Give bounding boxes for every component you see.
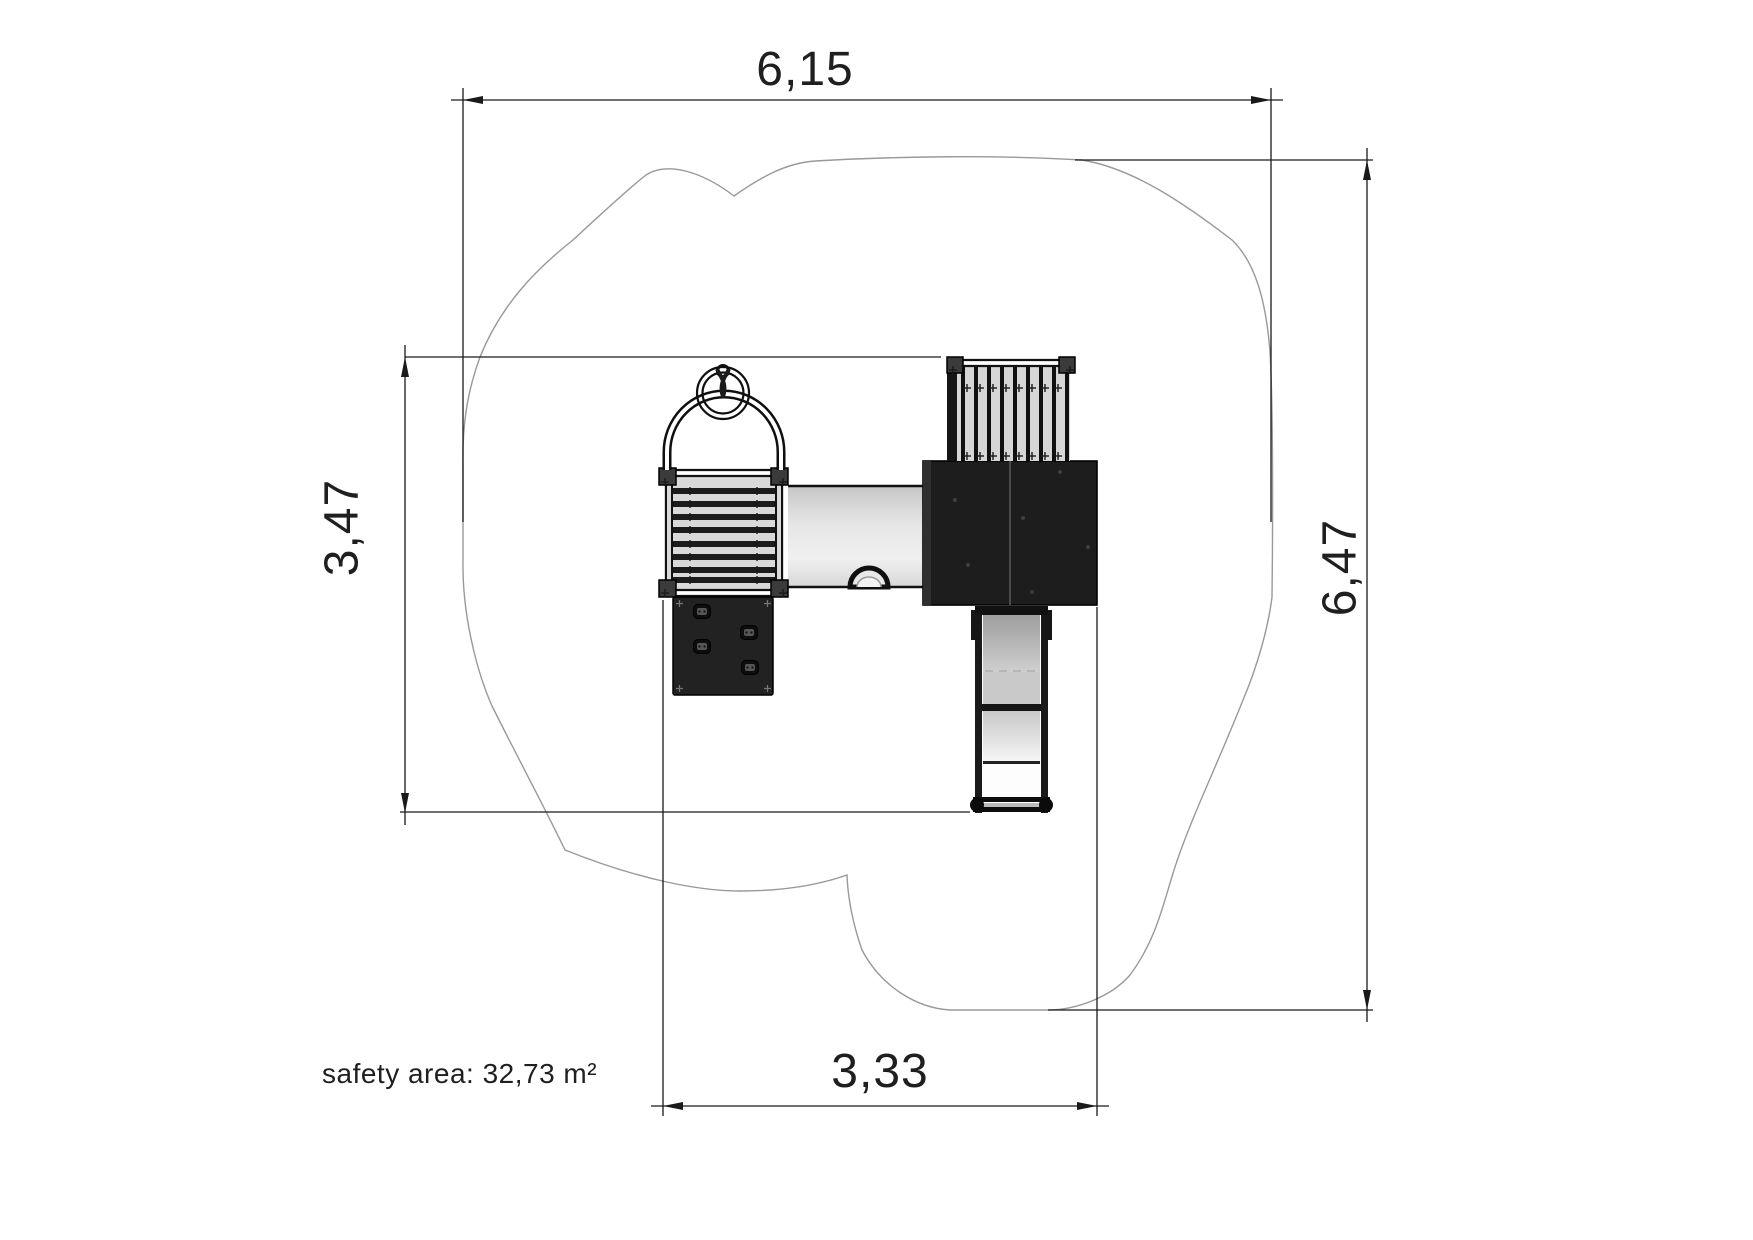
climbing-wall	[947, 357, 1075, 461]
dimension-top-width	[451, 88, 1283, 522]
crawl-tunnel	[788, 486, 923, 587]
tower-deck	[923, 461, 1097, 605]
plan-drawing-canvas: 6,15 6,47 3,47 3,33 safety area: 32,73 m…	[0, 0, 1753, 1240]
climbing-arch	[667, 394, 781, 470]
net-platform	[659, 468, 788, 597]
tunnel-handle	[850, 568, 888, 587]
dim-label-left-height: 3,47	[315, 468, 370, 588]
dim-label-bottom-width: 3,33	[780, 1044, 980, 1099]
dim-label-top-width: 6,15	[705, 42, 905, 97]
dim-label-right-height: 6,47	[1313, 508, 1368, 628]
safety-area-label: safety area: 32,73 m²	[322, 1058, 597, 1090]
climbing-rock-panel	[673, 597, 773, 695]
slide	[970, 606, 1053, 813]
